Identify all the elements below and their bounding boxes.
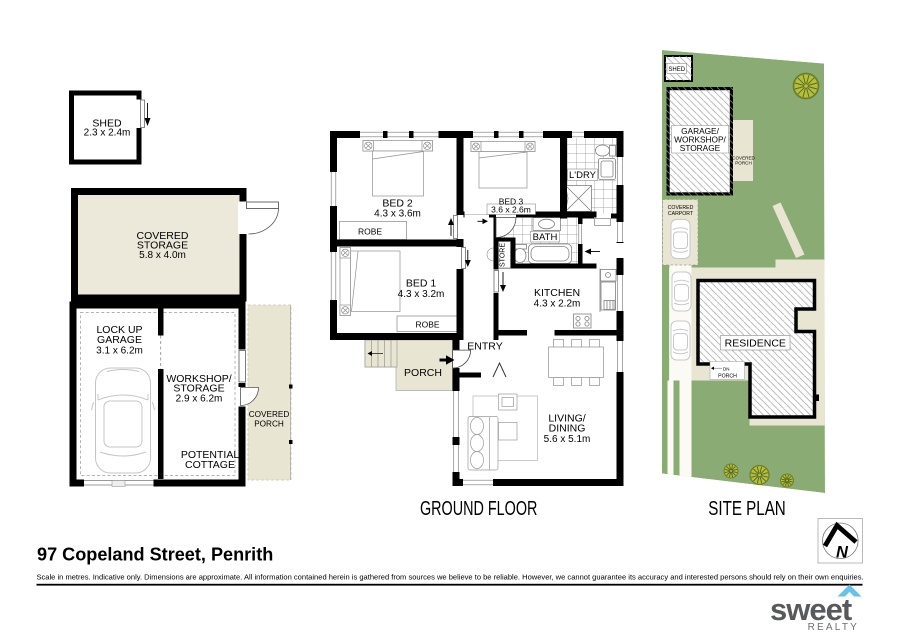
svg-text:PORCH: PORCH (718, 374, 737, 380)
svg-text:4.3 x 3.6m: 4.3 x 3.6m (374, 209, 421, 220)
svg-text:2.9 x 6.2m: 2.9 x 6.2m (176, 394, 223, 405)
svg-text:4.3 x 2.2m: 4.3 x 2.2m (534, 299, 581, 310)
svg-text:3.6 x 2.6m: 3.6 x 2.6m (491, 205, 531, 215)
svg-text:COVERED: COVERED (249, 410, 290, 419)
svg-text:DINING: DINING (549, 423, 586, 435)
svg-text:RESIDENCE: RESIDENCE (725, 338, 786, 350)
svg-text:STORAGE: STORAGE (680, 143, 721, 153)
svg-text:3.1 x 6.2m: 3.1 x 6.2m (96, 346, 143, 357)
svg-text:ENTRY: ENTRY (467, 341, 502, 353)
svg-text:CARPORT: CARPORT (668, 211, 694, 217)
svg-text:SITE PLAN: SITE PLAN (708, 498, 786, 520)
svg-text:5.8 x 4.0m: 5.8 x 4.0m (139, 250, 186, 261)
svg-text:KITCHEN: KITCHEN (534, 287, 580, 299)
svg-text:PORCH: PORCH (735, 161, 752, 166)
svg-text:GROUND FLOOR: GROUND FLOOR (420, 498, 538, 520)
svg-text:REALTY: REALTY (808, 622, 859, 633)
svg-text:BATH: BATH (533, 232, 558, 243)
svg-text:STORE: STORE (500, 243, 507, 267)
svg-text:COTTAGE: COTTAGE (185, 459, 235, 471)
svg-text:N: N (836, 544, 849, 562)
svg-text:PORCH: PORCH (404, 367, 442, 379)
svg-text:DN: DN (723, 366, 730, 371)
svg-text:Scale in metres. Indicative on: Scale in metres. Indicative only. Dimens… (37, 573, 864, 582)
svg-text:PORCH: PORCH (254, 420, 284, 429)
svg-text:SHED: SHED (668, 67, 685, 73)
svg-text:ROBE: ROBE (358, 227, 382, 237)
svg-text:97 Copeland Street, Penrith: 97 Copeland Street, Penrith (37, 545, 273, 565)
svg-text:5.6 x 5.1m: 5.6 x 5.1m (544, 434, 591, 445)
svg-text:L'DRY: L'DRY (569, 170, 597, 181)
svg-text:GARAGE: GARAGE (97, 334, 142, 346)
svg-text:ROBE: ROBE (415, 320, 439, 330)
svg-text:BED 1: BED 1 (406, 278, 437, 290)
svg-text:2.3 x 2.4m: 2.3 x 2.4m (84, 128, 131, 139)
svg-text:4.3 x 3.2m: 4.3 x 3.2m (398, 289, 445, 300)
